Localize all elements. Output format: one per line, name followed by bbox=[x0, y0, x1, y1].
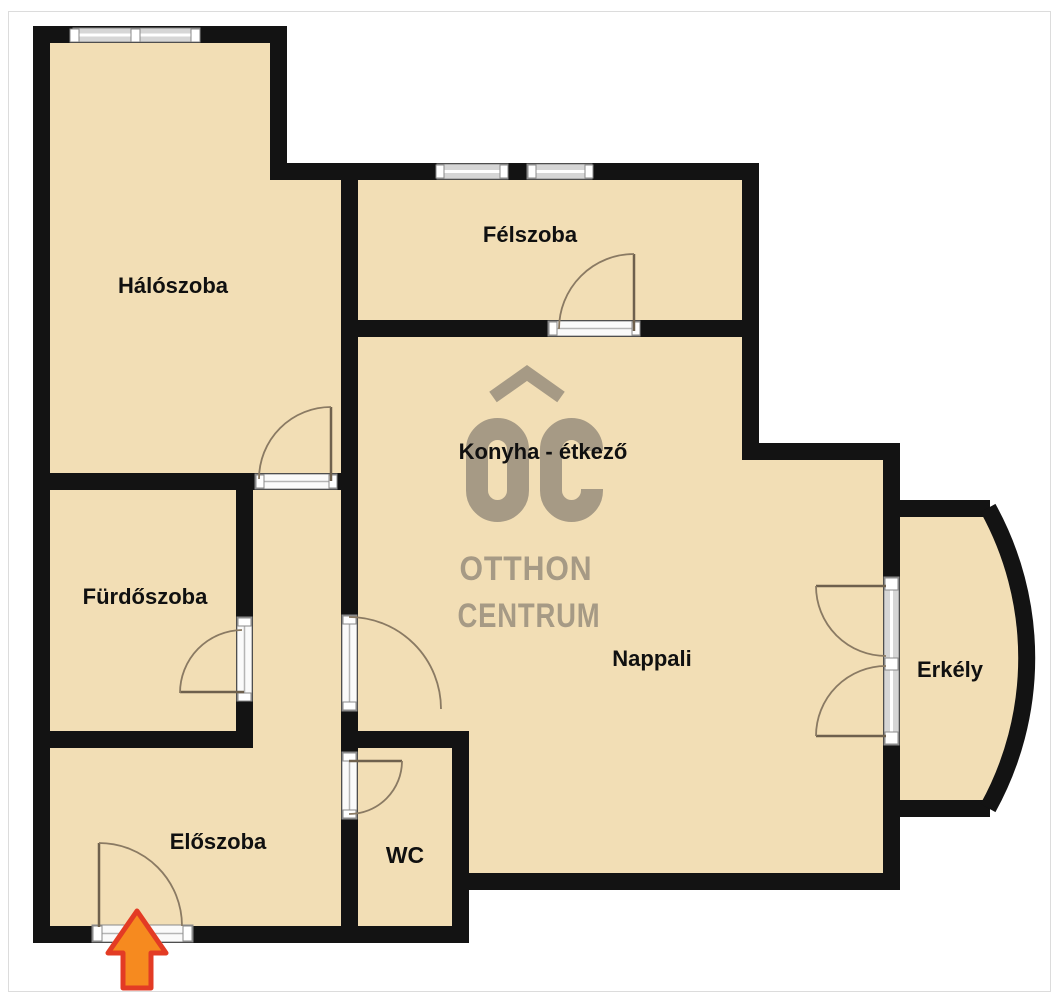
room-label-konyha-etkezo: Konyha - étkező bbox=[459, 439, 628, 464]
floorplan-canvas: OTTHON CENTRUM bbox=[0, 0, 1054, 1000]
room-label-felszoba: Félszoba bbox=[483, 222, 578, 247]
room-label-furdoszoba: Fürdőszoba bbox=[83, 584, 208, 609]
floor-felszoba bbox=[350, 175, 750, 330]
wall-erkely-south bbox=[900, 800, 990, 817]
floor-haloszoba-lower bbox=[45, 170, 350, 480]
wall-haloszoba-east-upper bbox=[270, 26, 287, 171]
room-label-wc: WC bbox=[386, 842, 424, 868]
floor-furdoszoba bbox=[45, 480, 245, 740]
wall-furdoszoba-south bbox=[33, 731, 253, 748]
wall-felszoba-east bbox=[742, 163, 759, 460]
room-label-erkely: Erkély bbox=[917, 657, 984, 682]
floor-haloszoba-upper bbox=[45, 40, 280, 180]
wall-wc-east bbox=[452, 731, 469, 943]
room-label-nappali: Nappali bbox=[612, 646, 691, 671]
wall-wc-north bbox=[341, 731, 469, 748]
wall-nappali-south bbox=[452, 873, 900, 890]
watermark-line2: CENTRUM bbox=[458, 597, 601, 635]
floor-wc bbox=[350, 740, 460, 930]
room-label-eloszoba: Előszoba bbox=[170, 829, 267, 854]
watermark-line1: OTTHON bbox=[460, 550, 593, 588]
room-label-haloszoba: Hálószoba bbox=[118, 273, 229, 298]
wall-erkely-north bbox=[900, 500, 990, 517]
wall-nappali-north bbox=[742, 443, 900, 460]
